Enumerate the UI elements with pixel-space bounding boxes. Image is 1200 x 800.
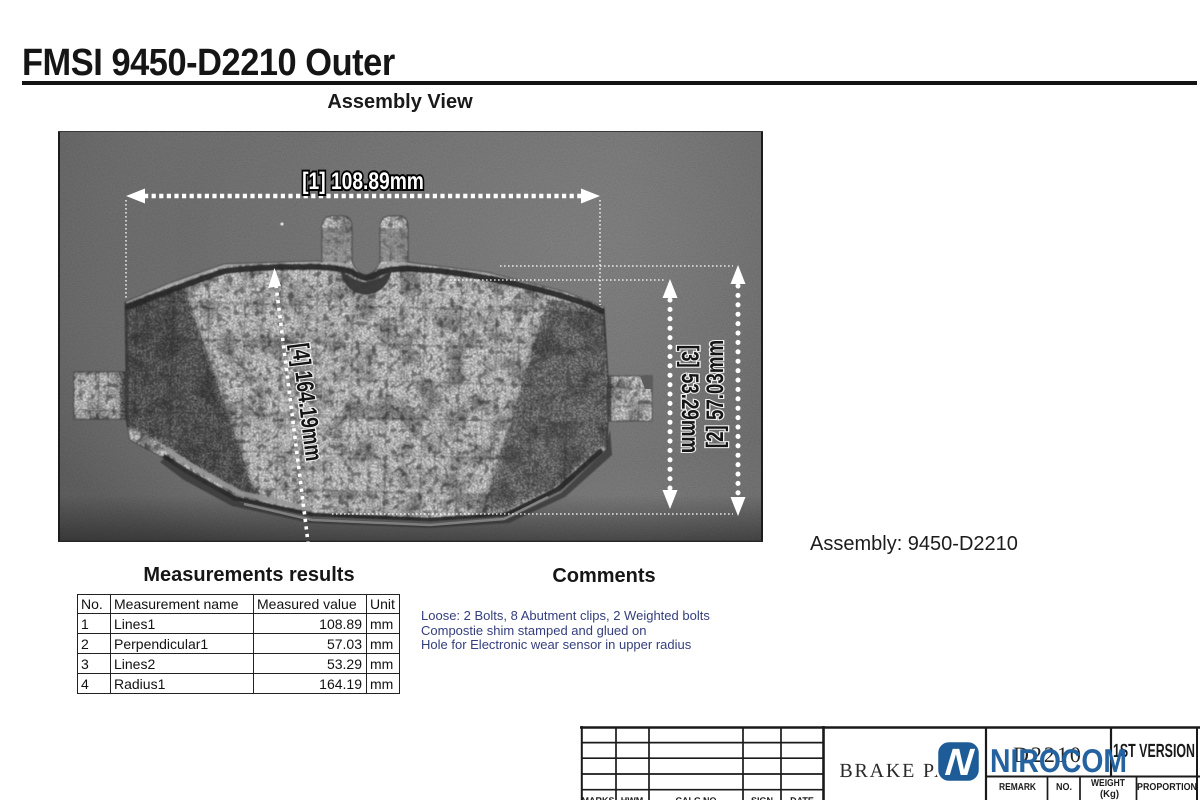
svg-text:DATE: DATE (790, 796, 814, 800)
svg-text:(Kg): (Kg) (1100, 789, 1119, 800)
svg-text:HWM: HWM (621, 796, 644, 800)
svg-text:PROPORTION: PROPORTION (1137, 782, 1197, 793)
svg-text:[1] 108.89mm: [1] 108.89mm (302, 168, 424, 195)
svg-text:[2] 57.03mm: [2] 57.03mm (702, 340, 729, 448)
svg-text:[3] 53.29mm: [3] 53.29mm (676, 345, 703, 453)
svg-text:NIROCOM: NIROCOM (990, 742, 1127, 779)
svg-text:MARKS: MARKS (582, 796, 615, 800)
svg-text:CALC NO: CALC NO (676, 796, 717, 800)
svg-text:SIGN: SIGN (751, 796, 773, 800)
